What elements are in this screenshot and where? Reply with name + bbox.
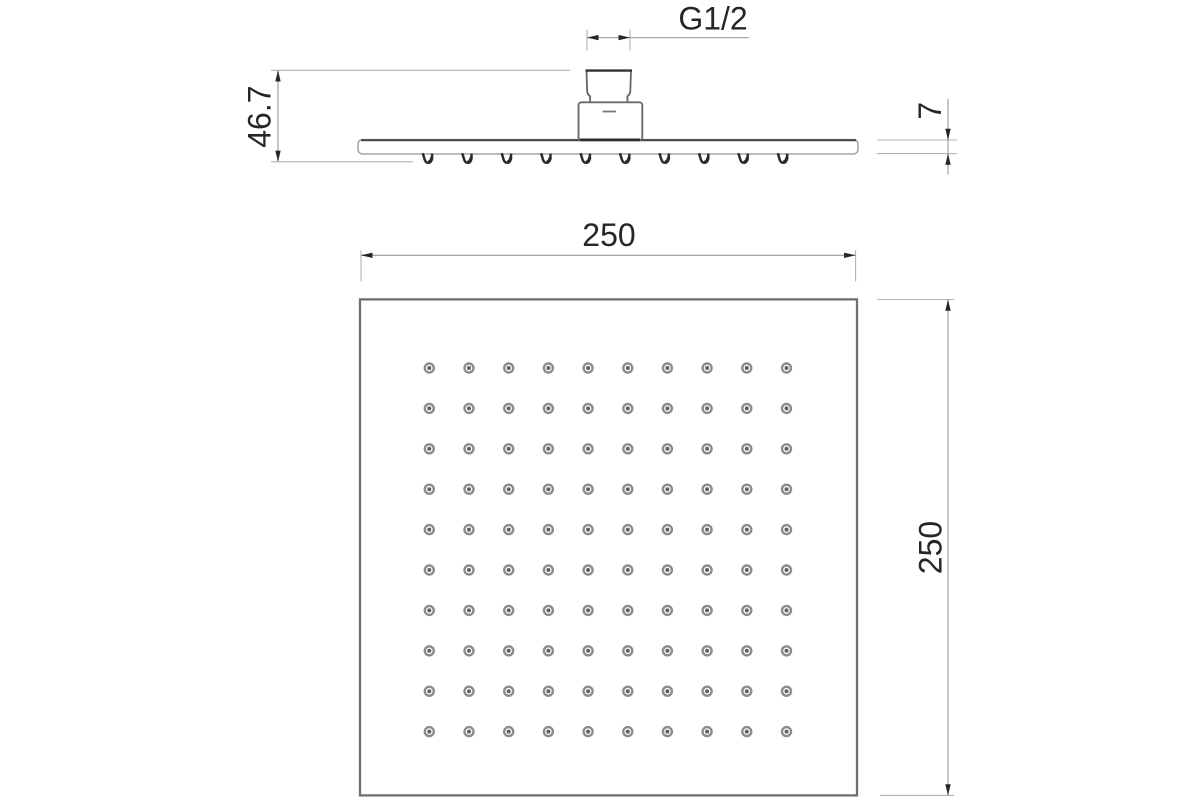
svg-text:46.7: 46.7 [242,85,278,147]
svg-text:G1/2: G1/2 [678,1,747,37]
svg-text:250: 250 [582,217,635,253]
svg-text:250: 250 [913,521,949,574]
svg-text:7: 7 [912,102,948,120]
